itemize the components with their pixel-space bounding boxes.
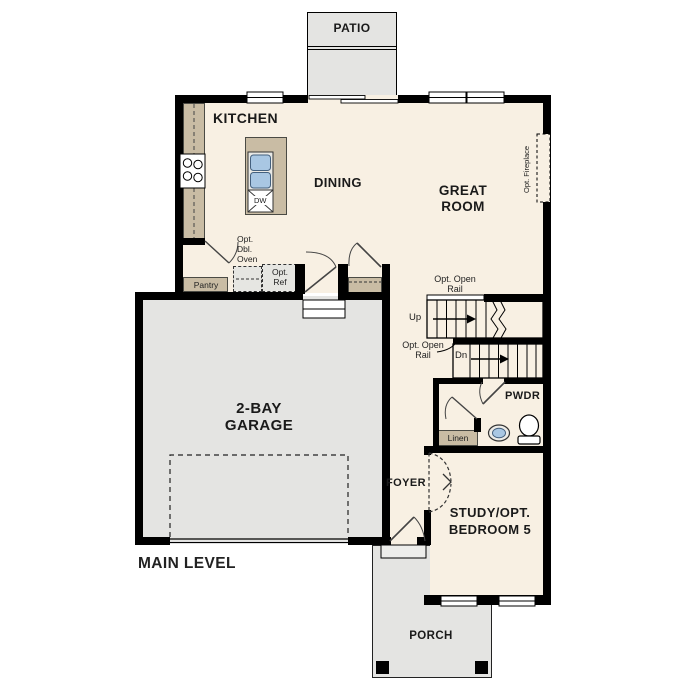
wall-stair-bottom-a bbox=[438, 378, 483, 384]
wall-top bbox=[175, 95, 551, 103]
wall-right bbox=[543, 95, 551, 605]
kitchen-counter bbox=[183, 103, 205, 240]
wall-garage-bottom-a bbox=[135, 537, 170, 545]
floor-plan: PATIO KITCHEN DINING GREAT ROOM 2-BAY GA… bbox=[0, 0, 687, 687]
wall-garage-left bbox=[135, 292, 143, 545]
oven-label-2: Dbl. bbox=[237, 244, 252, 254]
wall-linen-stub bbox=[474, 418, 481, 432]
wall-stair-mid bbox=[453, 338, 543, 344]
linen-label: Linen bbox=[448, 433, 469, 443]
study-label-2: BEDROOM 5 bbox=[449, 522, 531, 537]
kitchen-label: KITCHEN bbox=[213, 110, 278, 126]
great-room-label-2: ROOM bbox=[441, 199, 485, 214]
oven-label-1: Opt. bbox=[237, 234, 253, 244]
opt-double-oven-cabinet bbox=[233, 266, 262, 292]
wall-foyer-bottom-a bbox=[378, 537, 391, 545]
great-room-label-1: GREAT bbox=[439, 183, 487, 198]
patio-divider bbox=[307, 46, 397, 50]
garage-label-1: 2-BAY bbox=[236, 400, 282, 417]
porch-post-right bbox=[475, 661, 488, 674]
wall-powder-west bbox=[433, 378, 439, 448]
rail-lower-label-2: Rail bbox=[415, 350, 431, 360]
patio-label: PATIO bbox=[334, 21, 371, 35]
wall-mud-stub-1 bbox=[295, 264, 305, 294]
wall-study-top bbox=[430, 446, 543, 453]
oven-label-3: Oven bbox=[237, 254, 257, 264]
wall-left bbox=[175, 95, 183, 300]
wall-stair-bottom-b bbox=[504, 378, 551, 384]
wall-garage-top-a bbox=[135, 292, 303, 300]
wall-kitchen-stub bbox=[175, 238, 205, 245]
rail-upper-label-2: Rail bbox=[447, 284, 463, 294]
opt-fireplace-label: Opt. Fireplace bbox=[522, 136, 531, 202]
pantry-label: Pantry bbox=[194, 280, 219, 290]
foyer-label: FOYER bbox=[386, 477, 426, 489]
garage-label-2: GARAGE bbox=[225, 417, 293, 434]
main-floor-upper bbox=[183, 103, 543, 293]
porch-post-left bbox=[376, 661, 389, 674]
wall-closet-right bbox=[382, 264, 390, 294]
rail-upper-label-1: Opt. Open bbox=[434, 274, 476, 284]
closet-shelf bbox=[348, 277, 382, 293]
wall-study-bottom bbox=[424, 595, 551, 605]
wall-mud-stub-2 bbox=[338, 264, 348, 294]
stairs-up-label: Up bbox=[409, 312, 421, 323]
stairs-down-label: Dn bbox=[455, 350, 467, 361]
ref-label-1: Opt. bbox=[272, 267, 288, 277]
main-level-label: MAIN LEVEL bbox=[138, 555, 236, 573]
wall-study-left-a bbox=[424, 446, 431, 455]
wall-foyer-bottom-b bbox=[417, 537, 431, 545]
porch-label: PORCH bbox=[409, 630, 453, 642]
dining-label: DINING bbox=[314, 175, 362, 190]
wall-garage-right bbox=[382, 292, 390, 545]
wall-stair-top bbox=[484, 294, 543, 302]
powder-label: PWDR bbox=[505, 390, 540, 402]
study-label-1: STUDY/OPT. bbox=[450, 505, 531, 520]
ref-label-2: Ref bbox=[273, 277, 286, 287]
rail-lower-label-1: Opt. Open bbox=[402, 340, 444, 350]
dishwasher-label: DW bbox=[253, 196, 268, 205]
